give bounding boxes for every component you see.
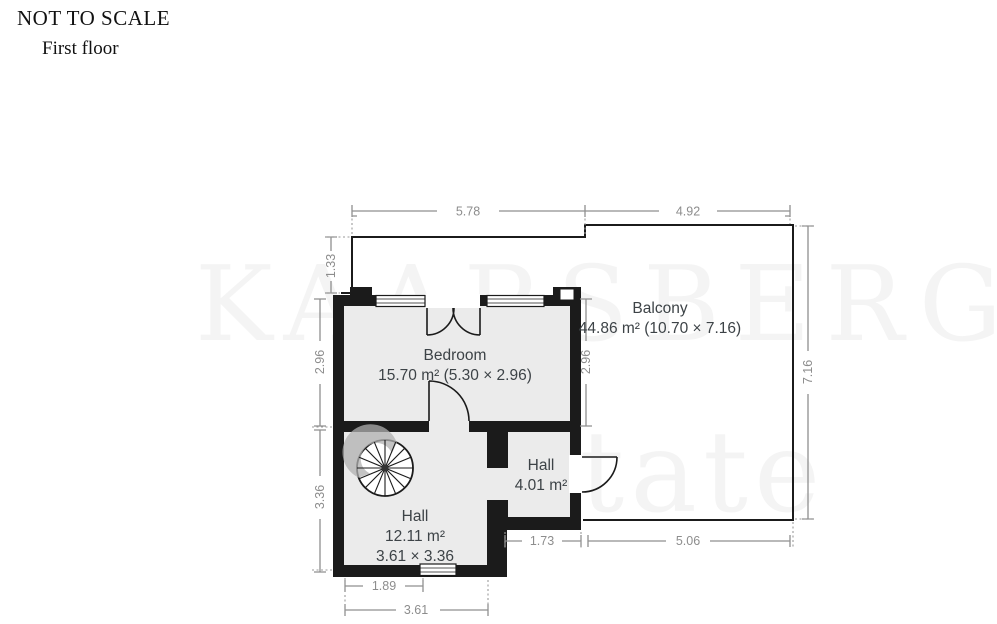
opening-hall-balcony (569, 455, 582, 493)
opening-balcony-doors (425, 294, 480, 308)
bedroom-label: Bedroom (424, 347, 487, 364)
balcony-area: 44.86 m² (10.70 × 7.16) (579, 320, 741, 337)
hall-main-dimensions: 3.61 × 3.36 (376, 548, 454, 565)
window-icon (420, 564, 456, 576)
dim-hall-bottom: 3.61 (404, 603, 428, 617)
hall-main-label: Hall (402, 508, 429, 525)
balcony-door-icon (582, 457, 617, 492)
opening-halls (487, 468, 508, 500)
floorplan-drawing: 5.78 4.92 1.33 2.96 3.36 2.96 7.16 1.73 … (0, 0, 997, 624)
dim-balcony-right: 7.16 (801, 360, 815, 384)
dim-balcony-left-upper: 1.33 (324, 254, 338, 278)
opening-bedroom-hall (429, 420, 469, 433)
dim-hall-window-bottom: 1.89 (372, 579, 396, 593)
dim-top-left: 5.78 (456, 205, 480, 219)
pillar-left (350, 287, 372, 297)
pillar-notch (560, 289, 574, 300)
dim-hall-left: 3.36 (313, 485, 327, 509)
dim-bedroom-right: 2.96 (579, 350, 593, 374)
floorplan-page: NOT TO SCALE First floor KAARSBERG Estat… (0, 0, 997, 624)
hall-small-area: 4.01 m² (515, 477, 568, 494)
hall-small-floor (508, 432, 570, 517)
hall-main-area: 12.11 m² (385, 528, 445, 545)
window-icon (487, 296, 544, 307)
bedroom-area: 15.70 m² (5.30 × 2.96) (378, 367, 532, 384)
window-icon (376, 296, 425, 307)
dim-hall-small-bottom: 1.73 (530, 534, 554, 548)
hall-small-label: Hall (528, 457, 555, 474)
dim-balcony-bottom: 5.06 (676, 534, 700, 548)
balcony-label: Balcony (632, 300, 687, 317)
dim-bedroom-left: 2.96 (313, 350, 327, 374)
dim-top-right: 4.92 (676, 205, 700, 219)
